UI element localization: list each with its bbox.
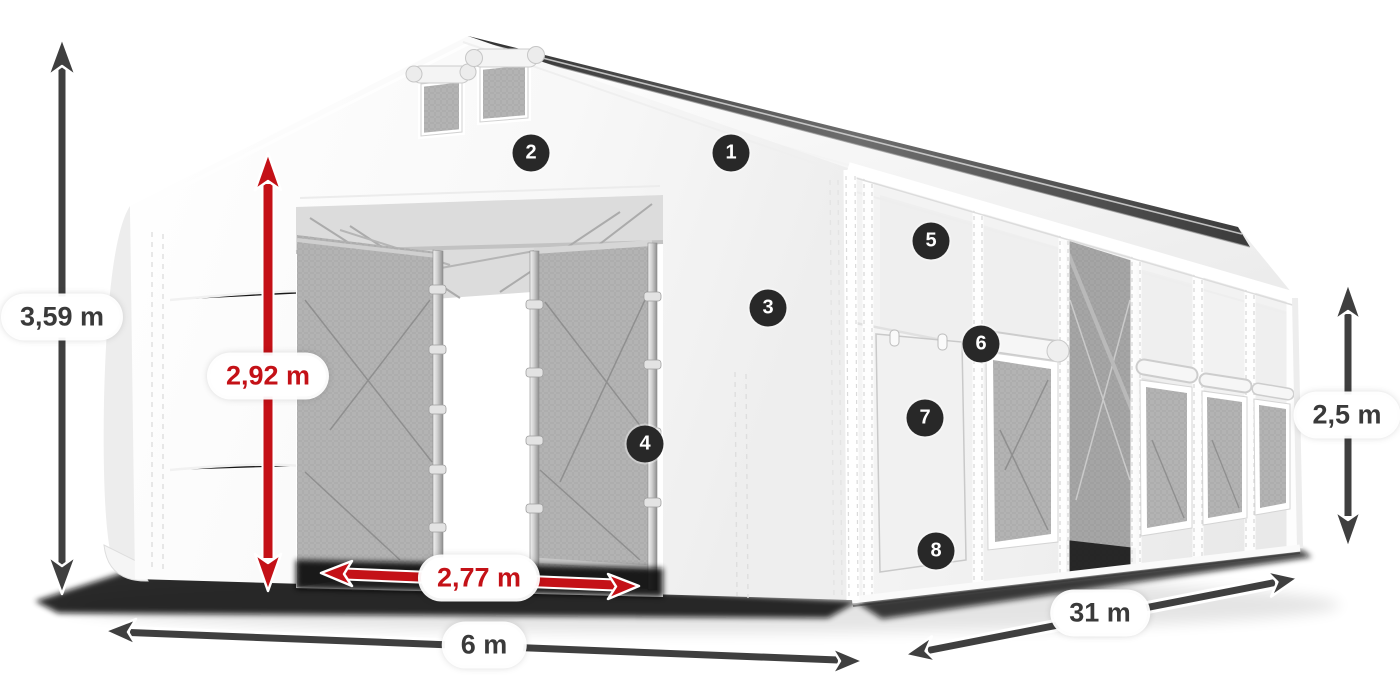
dimension-label-total-height: 3,59 m bbox=[4, 296, 120, 337]
callout-badge-7: 7 bbox=[907, 400, 944, 437]
side-window-3 bbox=[1202, 380, 1247, 525]
side-open-doorway bbox=[1062, 238, 1140, 576]
callout-badge-8: 8 bbox=[918, 533, 955, 570]
dimension-label-front-width: 6 m bbox=[445, 624, 524, 665]
dimension-label-entry-width: 2,77 m bbox=[421, 557, 537, 598]
callout-badge-5: 5 bbox=[913, 223, 950, 260]
side-window-2 bbox=[1140, 367, 1192, 536]
dimension-label-entry-height: 2,92 m bbox=[210, 355, 326, 396]
tent-illustration bbox=[0, 0, 1400, 700]
dimension-label-wall-height: 2,5 m bbox=[1296, 394, 1397, 435]
callout-badge-4: 4 bbox=[627, 426, 664, 463]
dimension-label-side-length: 31 m bbox=[1053, 592, 1147, 633]
callout-badge-1: 1 bbox=[713, 135, 750, 172]
side-door-flap bbox=[876, 330, 966, 572]
front-entrance-opening bbox=[296, 195, 663, 597]
side-window-4 bbox=[1254, 389, 1290, 515]
callout-badge-2: 2 bbox=[513, 135, 550, 172]
callout-badge-6: 6 bbox=[963, 326, 1000, 363]
callout-badge-3: 3 bbox=[750, 290, 787, 327]
side-window-1 bbox=[975, 330, 1069, 550]
product-dimension-diagram: 3,59 m 2,92 m 2,77 m 6 m 31 m 2,5 m 1 2 … bbox=[0, 0, 1400, 700]
